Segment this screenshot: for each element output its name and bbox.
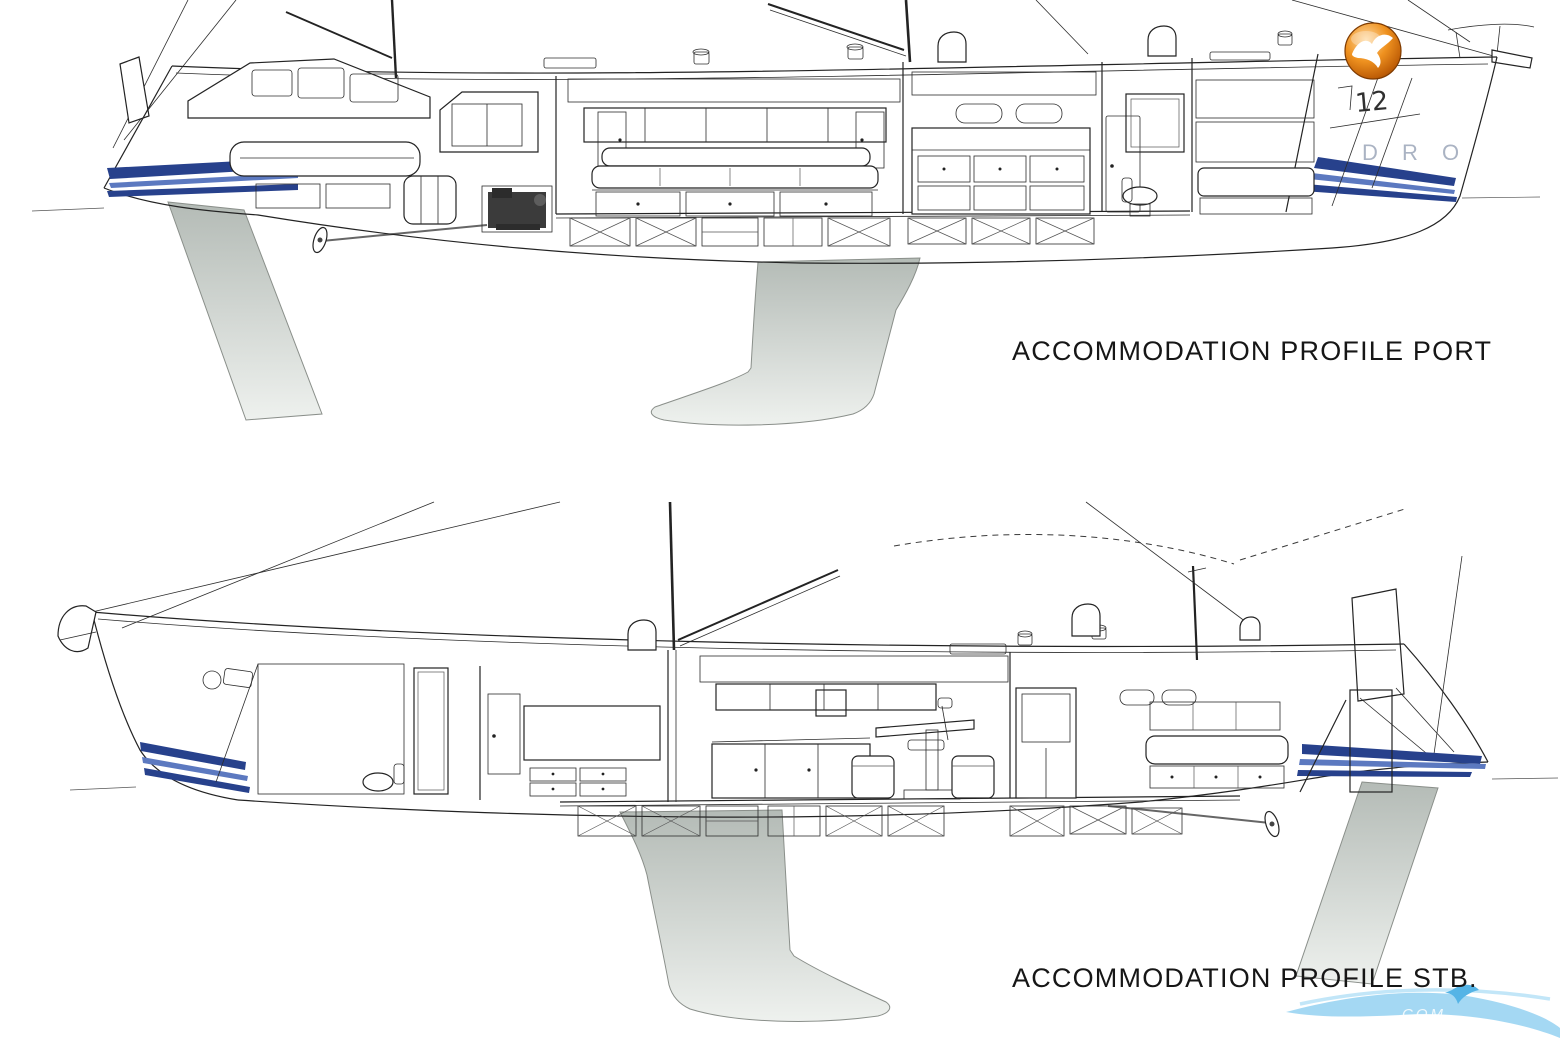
dorade-vent [1072,604,1100,636]
blueprint-canvas: 12 D R O COM [0,0,1560,1040]
stb-rudder [1296,782,1438,984]
hull-number-marking: 12 [1338,86,1390,119]
svg-text:12: 12 [1354,86,1390,119]
dorade-vent [938,32,966,62]
scanned-brochure-page: 12 D R O COM ACCOMMODATION PROFILE PORT … [0,0,1560,1040]
dorade-vent [628,620,656,650]
gull-logo-icon [1345,23,1401,79]
port-keel [651,258,920,425]
toilet [363,764,404,791]
stb-profile-drawing [58,502,1558,1021]
windlass [203,671,221,689]
port-propeller [310,225,487,254]
port-interior [188,54,1420,246]
caption-stb-profile: ACCOMMODATION PROFILE STB. [1012,963,1478,994]
toilet [1122,178,1157,216]
engine [482,186,552,232]
dorade-vent [1148,26,1176,56]
dorade-vent [1240,617,1260,640]
caption-port-profile: ACCOMMODATION PROFILE PORT [1012,336,1492,367]
port-rudder [168,202,322,420]
swoosh-watermark-text: COM [1402,1006,1446,1023]
windvane-blade [120,57,149,123]
port-deck-fittings [544,26,1292,68]
grey-watermark-text: D R O [1362,140,1468,165]
stb-keel [620,810,890,1021]
stb-propeller [1108,806,1282,838]
bilge-boxes [570,218,1094,246]
